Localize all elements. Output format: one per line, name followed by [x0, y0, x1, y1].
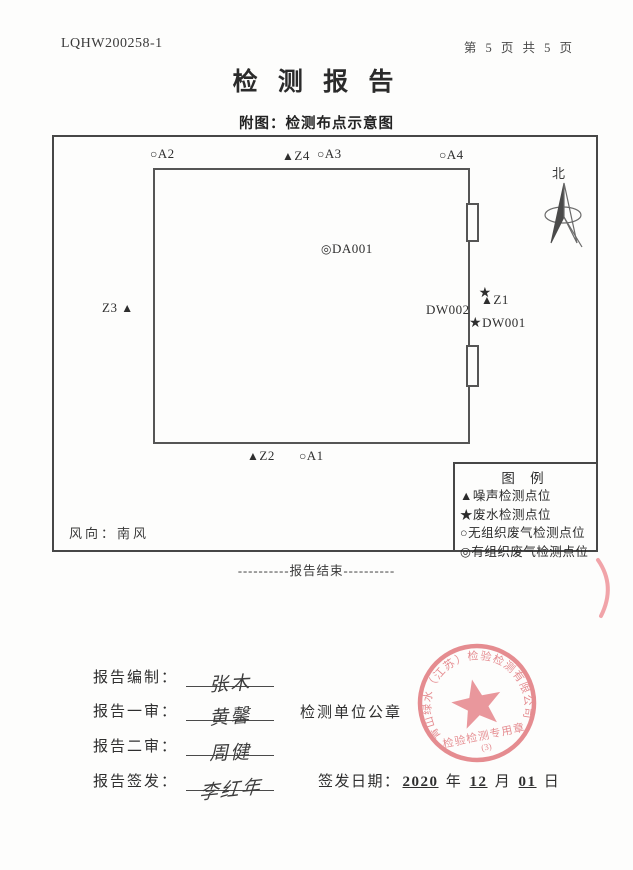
report-number: LQHW200258-1 — [61, 36, 163, 52]
triangle-marker-icon: ▲ — [460, 489, 473, 503]
legend: 图 例 ▲噪声检测点位 ★废水检测点位 ○无组织废气检测点位 ◎有组织废气检测点… — [453, 462, 598, 552]
document-title: 检 测 报 告 — [0, 62, 633, 98]
point-Z4: ▲Z4 — [282, 148, 310, 164]
building-outline — [153, 168, 470, 444]
report-end-marker: ----------报告结束---------- — [0, 560, 633, 579]
circle-marker-icon: ○ — [460, 526, 468, 540]
building-opening-bottom — [466, 345, 479, 387]
legend-item-organized-gas: ◎有组织废气检测点位 — [455, 543, 596, 562]
document-subtitle: 附图：检测布点示意图 — [0, 112, 633, 133]
signoff-row-issued: 报告签发：李红年 — [93, 770, 274, 791]
triangle-marker-icon: ▲ — [282, 149, 294, 163]
company-seal-stamp: 青山绿水（江苏）检验检测有限公司 检验检测专用章 (3) — [413, 639, 541, 767]
point-DA001: ◎DA001 — [321, 241, 373, 257]
issue-date-label: 签发日期： — [318, 774, 401, 790]
point-Z1: ▲Z1 — [481, 292, 509, 308]
issue-day: 01 — [517, 774, 539, 790]
triangle-marker-icon: ▲ — [247, 449, 259, 463]
legend-item-fugitive-gas: ○无组织废气检测点位 — [455, 524, 596, 543]
signature-handwriting: 周健 — [209, 737, 252, 765]
signature-line: 张木 — [186, 667, 274, 687]
compass-rose-icon — [541, 181, 585, 251]
site-layout-diagram: ○A2 ▲Z4 ○A3 ○A4 ◎DA001 ★DW002 ▲Z1 ★DW001… — [52, 135, 598, 552]
seal-star-icon — [448, 674, 507, 730]
point-A1: ○A1 — [299, 448, 324, 464]
signoff-label: 报告二审： — [93, 739, 178, 755]
page-number: 第 5 页 共 5 页 — [464, 37, 575, 56]
star-marker-icon: ★ — [469, 316, 482, 331]
seal-number: (3) — [480, 741, 492, 753]
signoff-label: 报告编制： — [93, 670, 178, 686]
stray-stamp-arc — [590, 556, 622, 620]
wind-direction: 风向：南风 — [69, 523, 149, 542]
triangle-marker-icon: ▲ — [121, 301, 133, 315]
bullseye-marker-icon: ◎ — [460, 545, 471, 559]
signoff-row-first-review: 报告一审：黄馨 — [93, 700, 274, 721]
legend-title: 图 例 — [455, 467, 596, 487]
signature-line: 李红年 — [186, 771, 274, 791]
building-opening-top — [466, 203, 479, 242]
triangle-marker-icon: ▲ — [481, 293, 493, 307]
north-label: 北 — [552, 163, 565, 182]
issue-date: 签发日期：2020 年 12 月 01 日 — [318, 770, 560, 791]
report-page: LQHW200258-1 第 5 页 共 5 页 检 测 报 告 附图：检测布点… — [0, 0, 633, 870]
point-A4: ○A4 — [439, 147, 464, 163]
bullseye-marker-icon: ◎ — [321, 242, 332, 256]
signature-handwriting: 张木 — [208, 668, 251, 697]
point-Z2: ▲Z2 — [247, 448, 275, 464]
circle-marker-icon: ○ — [317, 147, 325, 161]
circle-marker-icon: ○ — [299, 449, 307, 463]
issue-month: 12 — [468, 774, 490, 790]
signoff-label: 报告一审： — [93, 704, 178, 720]
issue-year: 2020 — [401, 774, 441, 790]
circle-marker-icon: ○ — [150, 147, 158, 161]
point-DW001: ★DW001 — [469, 315, 526, 332]
point-A3: ○A3 — [317, 146, 342, 162]
signoff-row-second-review: 报告二审：周健 — [93, 735, 274, 756]
signoff-label: 报告签发： — [93, 774, 178, 790]
seal-caption: 检测单位公章 — [300, 701, 402, 722]
star-marker-icon: ★ — [460, 508, 473, 522]
legend-item-wastewater: ★废水检测点位 — [455, 506, 596, 525]
signoff-row-prepared: 报告编制：张木 — [93, 666, 274, 687]
signature-line: 周健 — [186, 736, 274, 756]
signature-handwriting: 黄馨 — [208, 701, 252, 731]
signature-line: 黄馨 — [186, 701, 274, 721]
legend-item-noise: ▲噪声检测点位 — [455, 487, 596, 506]
signature-handwriting: 李红年 — [198, 771, 264, 805]
circle-marker-icon: ○ — [439, 148, 447, 162]
point-Z3: Z3 ▲ — [102, 300, 134, 316]
point-A2: ○A2 — [150, 146, 175, 162]
